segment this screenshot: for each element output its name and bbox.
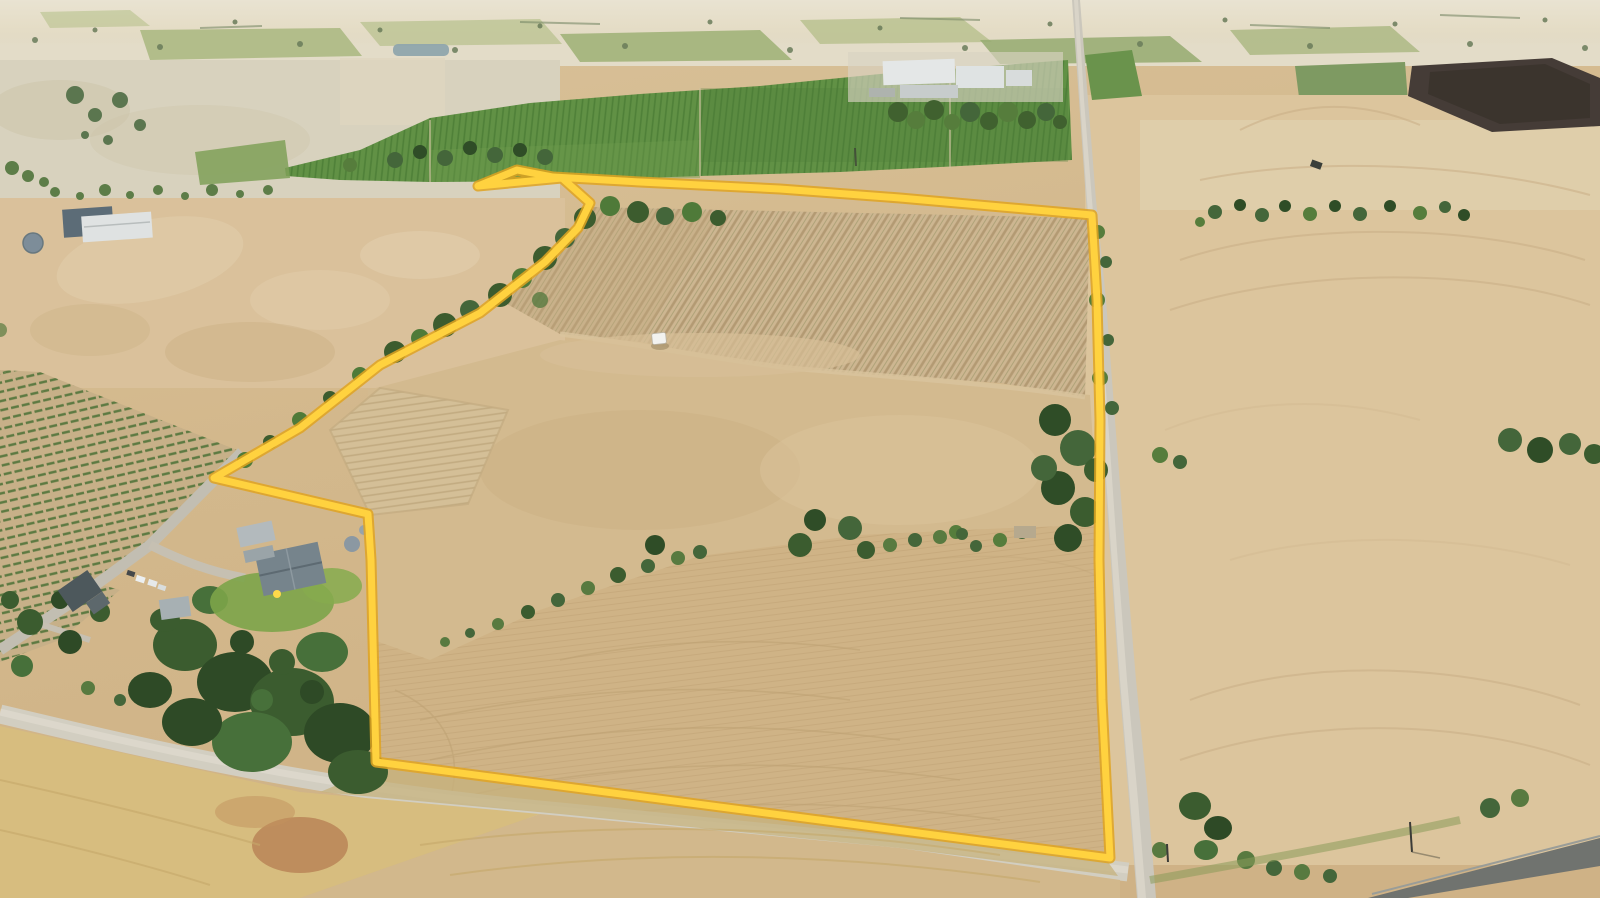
yard-object-yellow	[273, 590, 281, 598]
garden-shed	[159, 596, 191, 620]
green-patch-right-of-road	[1085, 50, 1142, 100]
field-dam-structure	[1014, 526, 1036, 538]
right-wheat-paddock	[1085, 95, 1600, 865]
screenshot-root	[0, 0, 1600, 898]
vineyard-headland	[540, 333, 860, 377]
aerial-photo-canvas	[0, 0, 1600, 898]
farm-dam	[393, 44, 449, 56]
rain-tank	[344, 536, 360, 552]
water-tank	[23, 233, 43, 253]
